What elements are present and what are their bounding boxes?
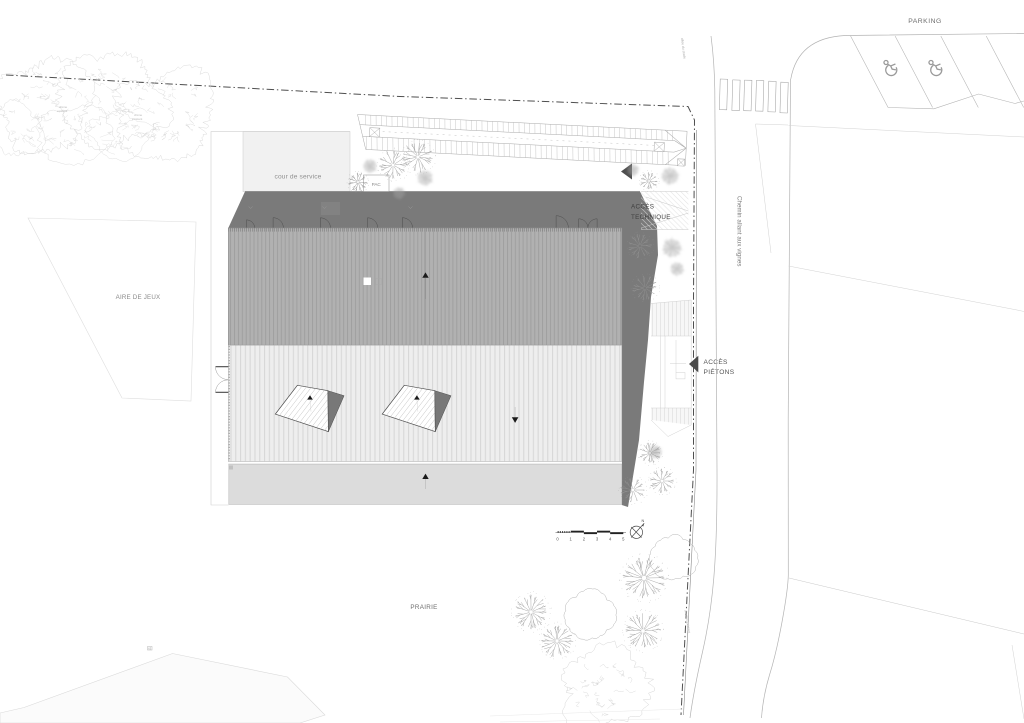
svg-text:allée du stade: allée du stade [680, 38, 687, 60]
svg-text:cour de service: cour de service [275, 174, 322, 181]
svg-text:chemin existant: chemin existant [684, 610, 692, 634]
svg-text:1: 1 [570, 537, 573, 542]
svg-text:4: 4 [609, 537, 612, 542]
svg-text:existant: existant [57, 109, 68, 113]
svg-text:PAC: PAC [372, 182, 382, 187]
svg-text:PIÉTONS: PIÉTONS [704, 367, 735, 376]
svg-text:AIRE DE JEUX: AIRE DE JEUX [116, 294, 161, 301]
svg-text:TECHNIQUE: TECHNIQUE [631, 214, 671, 221]
svg-text:5: 5 [622, 537, 625, 542]
svg-text:PARKING: PARKING [908, 18, 942, 25]
svg-text:2: 2 [583, 537, 586, 542]
svg-text:ACCÈS: ACCÈS [631, 202, 654, 211]
svg-text:existant: existant [132, 117, 143, 121]
svg-text:0: 0 [556, 537, 559, 542]
svg-text:Chemin allant aux vignes: Chemin allant aux vignes [736, 196, 743, 266]
svg-text:3: 3 [596, 537, 599, 542]
svg-text:ACCÈS: ACCÈS [704, 357, 729, 366]
svg-text:N: N [642, 519, 645, 523]
svg-text:PRAIRIE: PRAIRIE [410, 604, 437, 611]
